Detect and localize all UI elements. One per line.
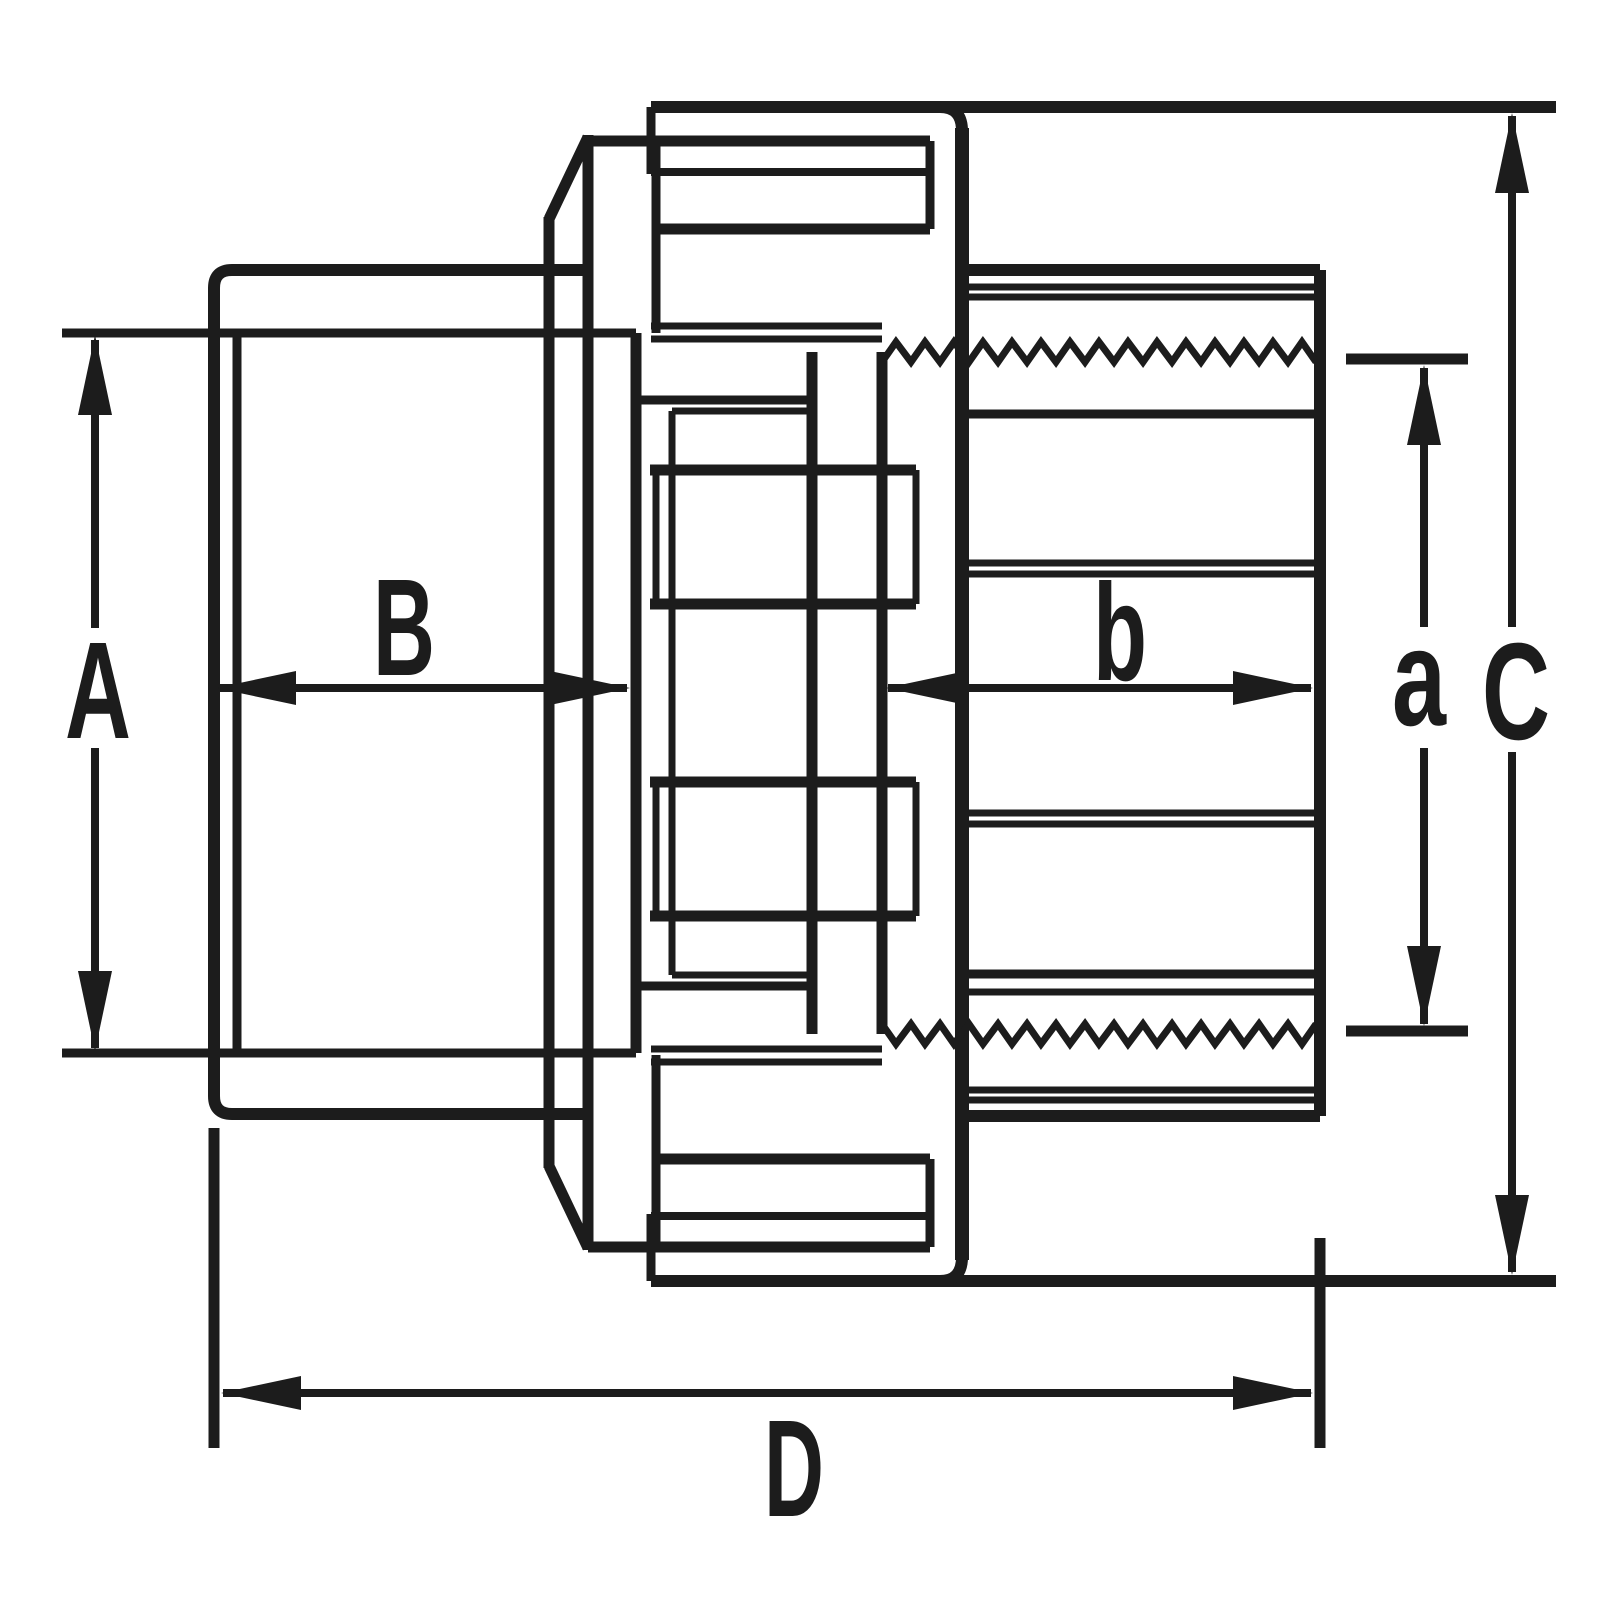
dimension-label-C: C bbox=[1482, 615, 1550, 769]
nut-top-chamfer bbox=[549, 137, 588, 219]
nut-interior-sleeve bbox=[636, 326, 916, 1062]
dim-D-arrowhead-right bbox=[1233, 1376, 1313, 1410]
dim-a-arrowhead-up bbox=[1407, 365, 1441, 445]
nut-bottom-chamfer bbox=[549, 1166, 588, 1248]
dimension-label-b: b bbox=[1093, 556, 1147, 710]
dimension-C: C bbox=[1482, 113, 1550, 1275]
dimension-b: b bbox=[886, 556, 1313, 710]
dimension-a: a bbox=[1346, 359, 1468, 1031]
dimension-label-a: a bbox=[1392, 601, 1447, 755]
dimension-D: D bbox=[214, 1128, 1320, 1546]
dimension-A: A bbox=[65, 335, 131, 1051]
dimension-B: B bbox=[216, 551, 630, 705]
dim-b-arrowhead-left bbox=[886, 671, 966, 705]
dim-C-arrowhead-down bbox=[1495, 1195, 1529, 1275]
dim-A-arrowhead-up bbox=[78, 335, 112, 415]
drawing-page: A B b a C D bbox=[0, 0, 1600, 1600]
dimension-label-A: A bbox=[65, 614, 131, 768]
dimension-label-B: B bbox=[373, 551, 435, 705]
dimension-label-D: D bbox=[764, 1392, 824, 1546]
nut-top-right-corner bbox=[940, 107, 962, 131]
dim-b-arrowhead-right bbox=[1233, 671, 1313, 705]
dim-D-arrowhead-left bbox=[221, 1376, 301, 1410]
thread-zigzag-top bbox=[882, 342, 1316, 362]
dim-B-arrowhead-left bbox=[216, 671, 296, 705]
dim-a-arrowhead-down bbox=[1407, 946, 1441, 1026]
dim-C-arrowhead-up bbox=[1495, 113, 1529, 193]
union-fitting-diagram: A B b a C D bbox=[0, 0, 1600, 1600]
dim-A-arrowhead-down bbox=[78, 971, 112, 1051]
thread-zigzag-bottom bbox=[882, 1024, 1316, 1044]
nut-bottom-right-corner bbox=[940, 1257, 962, 1281]
